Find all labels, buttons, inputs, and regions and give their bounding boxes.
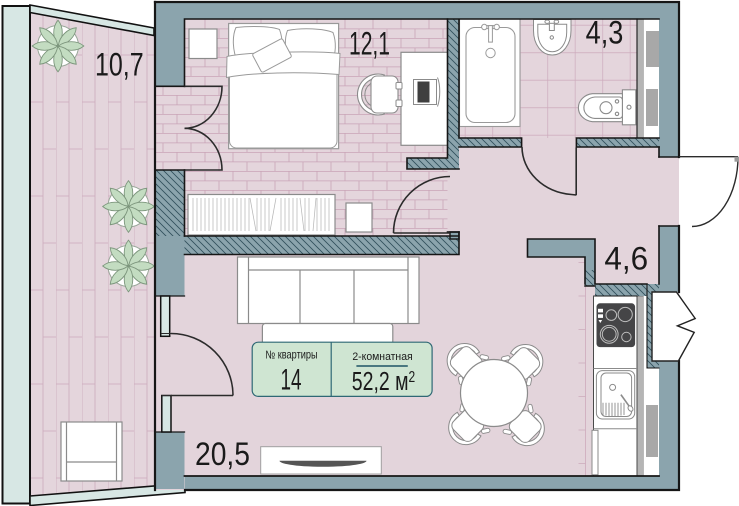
- svg-text:4,3: 4,3: [586, 15, 624, 51]
- svg-text:12,1: 12,1: [349, 25, 390, 62]
- svg-text:52,2 м2: 52,2 м2: [352, 366, 416, 395]
- svg-text:4,6: 4,6: [604, 240, 648, 277]
- svg-text:14: 14: [280, 363, 301, 397]
- svg-text:20,5: 20,5: [195, 436, 250, 472]
- svg-text:№ квартиры: № квартиры: [265, 350, 317, 362]
- svg-text:10,7: 10,7: [95, 47, 144, 83]
- svg-text:2-комнатная: 2-комнатная: [352, 351, 412, 363]
